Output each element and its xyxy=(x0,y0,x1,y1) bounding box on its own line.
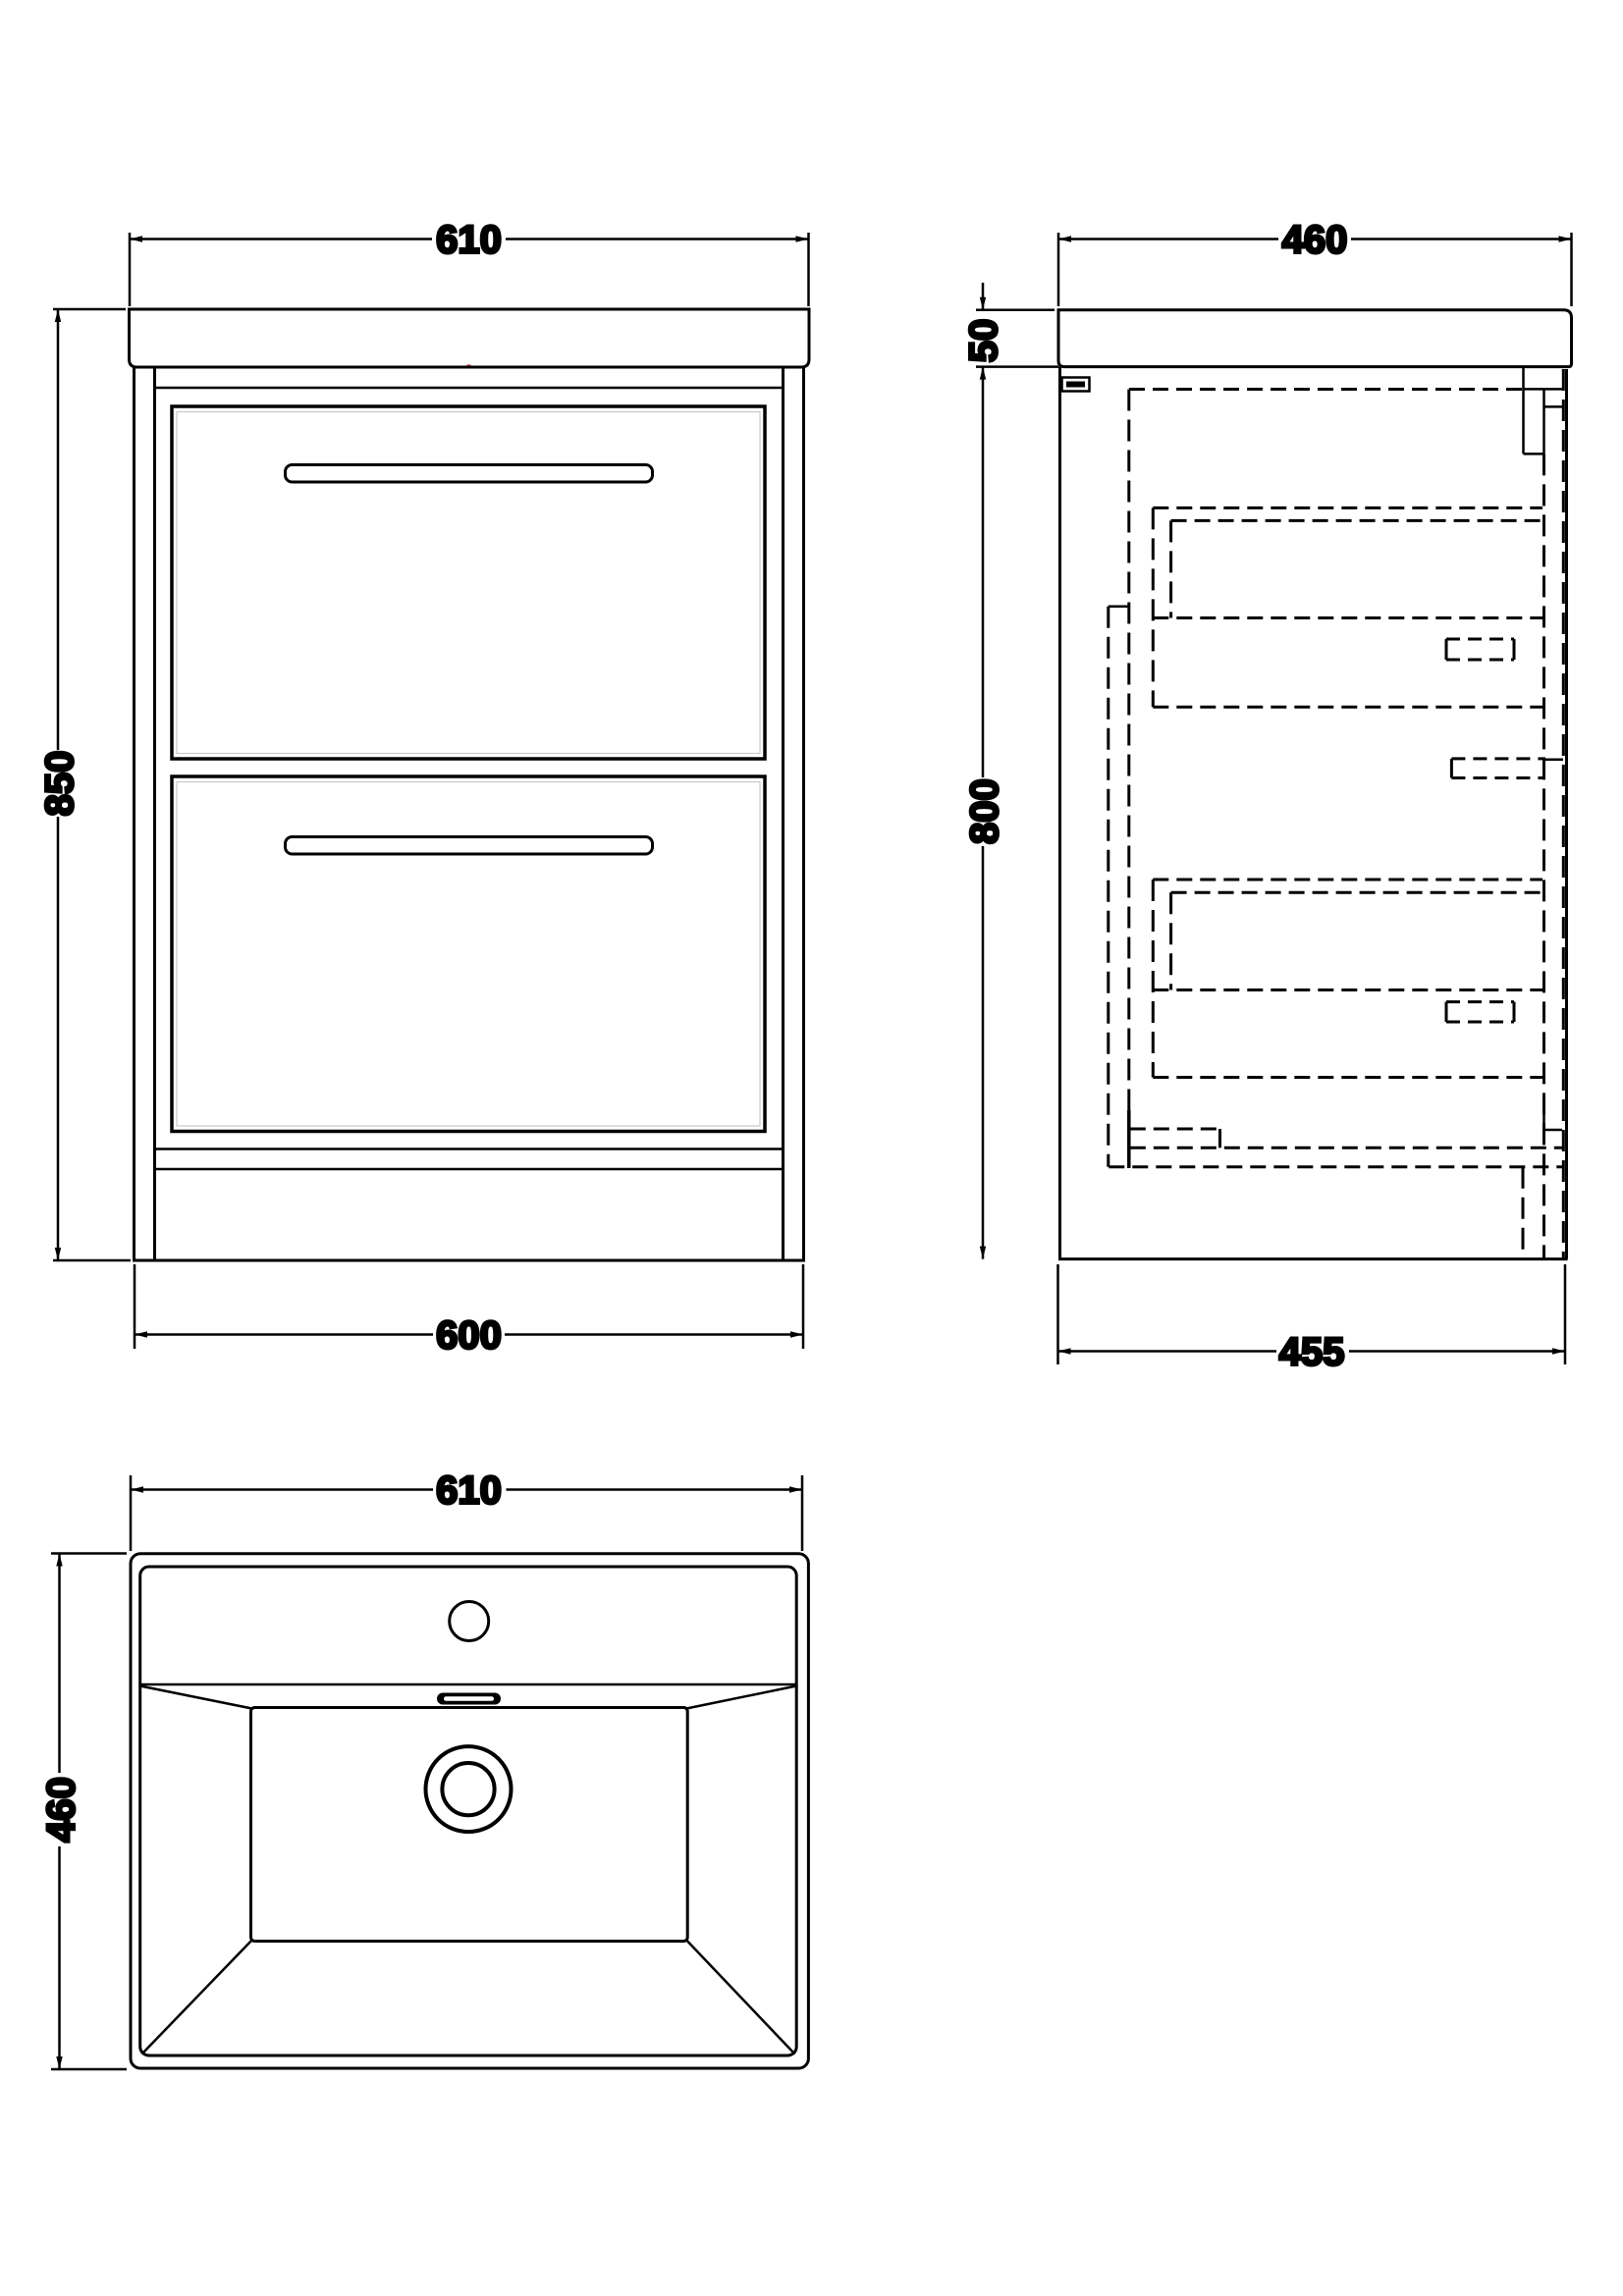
svg-text:460: 460 xyxy=(40,1777,83,1842)
svg-text:460: 460 xyxy=(1282,219,1348,262)
svg-text:610: 610 xyxy=(436,219,502,262)
svg-text:800: 800 xyxy=(963,778,1006,844)
svg-text:50: 50 xyxy=(962,319,1005,363)
svg-text:850: 850 xyxy=(38,751,81,817)
svg-text:610: 610 xyxy=(436,1469,502,1513)
svg-text:600: 600 xyxy=(436,1314,502,1358)
svg-text:455: 455 xyxy=(1279,1331,1345,1374)
